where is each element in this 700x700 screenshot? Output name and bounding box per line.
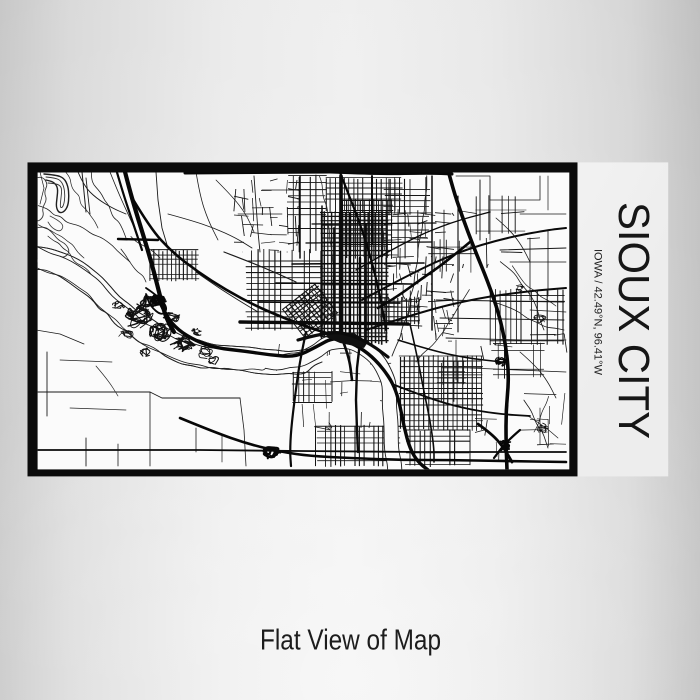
svg-text:SIOUX CITY: SIOUX CITY (609, 202, 658, 439)
svg-text:IOWA / 42.49°N, 96.41°W: IOWA / 42.49°N, 96.41°W (592, 249, 604, 376)
svg-text:Flat View of Map: Flat View of Map (260, 625, 441, 657)
